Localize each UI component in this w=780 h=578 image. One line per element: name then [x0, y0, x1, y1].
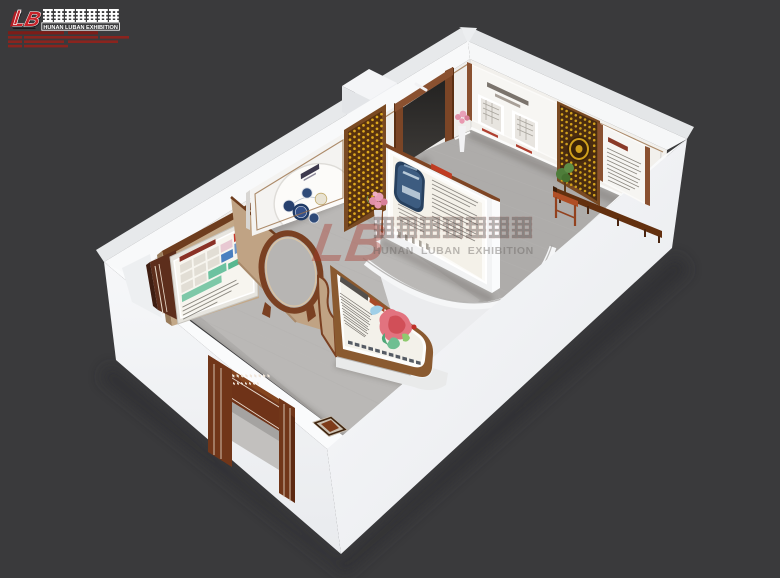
svg-text:HUNAN LUBAN EXHIBITION: HUNAN LUBAN EXHIBITION: [43, 25, 118, 31]
svg-text:HUNAN LUBAN EXHIBITION: HUNAN LUBAN EXHIBITION: [373, 245, 534, 257]
